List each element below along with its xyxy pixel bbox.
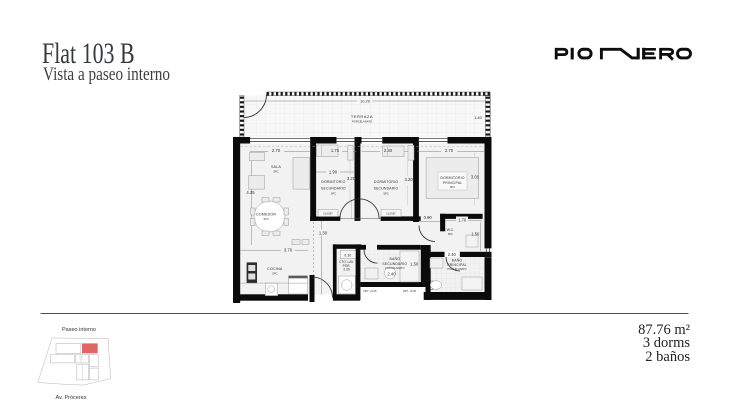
svg-text:NPT. +0.05: NPT. +0.05 — [403, 289, 416, 293]
svg-text:1.70: 1.70 — [458, 217, 467, 222]
svg-text:PRINCIPAL: PRINCIPAL — [447, 263, 467, 267]
svg-text:CLOSET: CLOSET — [386, 213, 396, 216]
svg-text:PRINCIPAL: PRINCIPAL — [443, 181, 463, 185]
svg-text:3.00: 3.00 — [471, 174, 480, 179]
svg-text:PORCELANATO: PORCELANATO — [385, 266, 404, 270]
svg-text:W.C.: W.C. — [447, 228, 455, 232]
svg-text:SPC: SPC — [273, 169, 278, 173]
svg-text:3.70: 3.70 — [284, 248, 293, 253]
svg-text:10.20: 10.20 — [360, 98, 371, 103]
svg-text:Paseo interno: Paseo interno — [62, 327, 96, 333]
svg-text:DORMITORIO: DORMITORIO — [374, 180, 398, 184]
svg-text:2.30: 2.30 — [343, 268, 349, 272]
svg-text:2.70: 2.70 — [445, 148, 454, 153]
svg-text:2.40: 2.40 — [387, 272, 396, 277]
svg-text:PORCELANATO: PORCELANATO — [352, 120, 372, 124]
svg-text:CLOSET: CLOSET — [323, 213, 333, 216]
svg-text:1.75: 1.75 — [331, 148, 340, 153]
svg-text:SPC: SPC — [450, 185, 455, 189]
svg-text:0.30: 0.30 — [344, 254, 351, 258]
svg-text:SECUNDARIO: SECUNDARIO — [321, 186, 346, 190]
svg-text:SALA: SALA — [271, 165, 281, 169]
svg-text:2.40: 2.40 — [448, 252, 457, 257]
svg-text:Av. Próceres: Av. Próceres — [56, 395, 87, 401]
svg-text:2.30: 2.30 — [384, 148, 393, 153]
svg-text:1.40: 1.40 — [474, 115, 483, 120]
svg-text:4.35: 4.35 — [246, 190, 255, 195]
svg-text:2.70: 2.70 — [272, 148, 281, 153]
svg-text:1.50: 1.50 — [410, 262, 419, 267]
svg-text:SECUNDARIO: SECUNDARIO — [382, 262, 407, 266]
svg-text:SPC: SPC — [272, 271, 277, 275]
svg-text:DORMITORIO: DORMITORIO — [321, 180, 345, 184]
svg-text:PORCELANATO: PORCELANATO — [447, 267, 466, 271]
svg-text:SPC: SPC — [383, 192, 388, 196]
svg-text:NPT. +0.05: NPT. +0.05 — [364, 289, 377, 293]
svg-text:SECUNDARIO: SECUNDARIO — [374, 186, 399, 190]
svg-text:TERRAZA: TERRAZA — [351, 114, 373, 119]
svg-text:SPC: SPC — [263, 217, 268, 221]
svg-text:1.90: 1.90 — [329, 169, 338, 174]
svg-text:COMEDOR: COMEDOR — [256, 213, 276, 217]
svg-text:DORMITORIO: DORMITORIO — [440, 176, 464, 180]
svg-text:COCINA: COCINA — [267, 267, 283, 271]
svg-text:0.90: 0.90 — [424, 215, 433, 220]
svg-text:SPC: SPC — [448, 232, 453, 236]
svg-text:3.20: 3.20 — [405, 177, 414, 182]
svg-text:BAÑO: BAÑO — [452, 258, 463, 263]
svg-text:1.30: 1.30 — [319, 230, 328, 235]
svg-text:1.50: 1.50 — [471, 231, 480, 236]
svg-text:SPC: SPC — [331, 192, 336, 196]
svg-text:3.20: 3.20 — [347, 176, 356, 181]
svg-text:BAÑO: BAÑO — [390, 256, 401, 261]
